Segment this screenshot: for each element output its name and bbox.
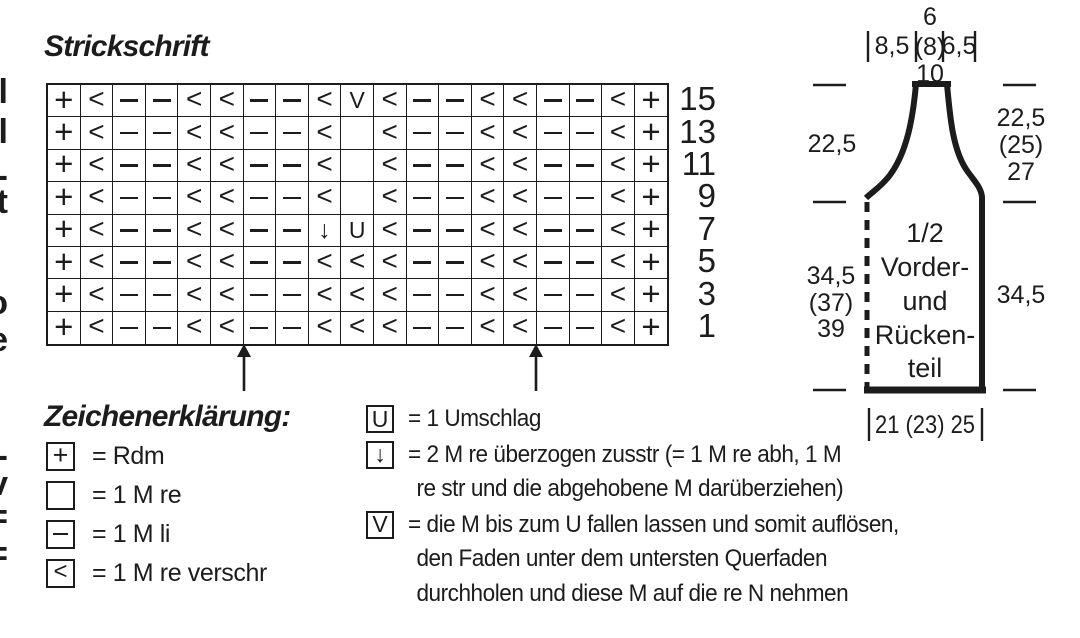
legend-item-text: = 1 M li <box>92 520 170 549</box>
chart-cell: < <box>178 117 211 149</box>
chart-cell <box>276 279 309 311</box>
chart-cell: < <box>602 312 635 344</box>
chart-cell: < <box>178 312 211 344</box>
chart-cell: < <box>211 279 244 311</box>
chart-cell: < <box>341 312 374 344</box>
chart-cell: U <box>341 215 374 247</box>
chart-cell <box>146 182 179 214</box>
chart-cell: < <box>211 150 244 182</box>
legend-symbol-box <box>46 520 75 549</box>
legend-item: V= die M bis zum U fallen lassen und som… <box>366 508 930 612</box>
purl-dash-icon <box>250 261 268 264</box>
legend-item-text: = 2 M re überzogen zusstr (= 1 M re abh,… <box>408 438 843 507</box>
chart-cell: < <box>472 117 505 149</box>
chart-cell: < <box>81 312 114 344</box>
clipped-margin-text-fragment: l <box>0 72 9 114</box>
purl-dash-icon <box>413 229 431 232</box>
legend-item-text: = 1 M re <box>92 481 181 510</box>
schematic-top-measures: 8,5 6 (8) 10 6,5 <box>868 3 976 88</box>
legend-symbol-box: < <box>46 559 75 588</box>
purl-dash-icon <box>544 229 562 232</box>
chart-cell: < <box>374 150 407 182</box>
chart-row-numbers: 15131197531 <box>672 83 716 342</box>
chart-cell <box>341 117 374 149</box>
scanned-knitting-pattern-page: { "chart": { "title": "Strickschrift", "… <box>0 0 1080 638</box>
purl-dash-icon <box>153 197 171 200</box>
chart-cell: + <box>48 279 81 311</box>
purl-dash-icon <box>413 261 431 264</box>
measure-right-lower: 34,5 <box>997 281 1046 309</box>
legend-item: = 1 M re <box>46 480 267 510</box>
legend-symbol-box: U <box>366 405 394 433</box>
clipped-glyph: o <box>0 283 8 323</box>
chart-cell: < <box>504 312 537 344</box>
piece-label-line: Vorder- <box>881 252 970 282</box>
purl-dash-icon <box>120 197 138 200</box>
legend-heading: Zeichenerklärung: <box>44 400 290 434</box>
chart-cell <box>407 247 440 279</box>
chart-cell: < <box>504 215 537 247</box>
clipped-margin-text-fragment: o <box>0 283 9 325</box>
purl-dash-icon <box>576 229 594 232</box>
chart-cell <box>570 117 603 149</box>
purl-dash-icon <box>250 327 268 330</box>
legend-item-text: = die M bis zum U fallen lassen und somi… <box>408 508 899 612</box>
chart-cell <box>113 215 146 247</box>
chart-cell: < <box>178 215 211 247</box>
chart-cell <box>276 150 309 182</box>
chart-cell: < <box>602 85 635 117</box>
chart-cell <box>439 279 472 311</box>
purl-dash-icon <box>153 294 171 297</box>
legend-text-line: durchholen und diese M auf die re N nehm… <box>408 577 899 612</box>
measure-right-upper: 27 <box>1007 158 1035 186</box>
purl-dash-icon <box>446 327 464 330</box>
chart-cell: < <box>341 247 374 279</box>
chart-cell: < <box>309 85 342 117</box>
chart-cell: ↓ <box>309 215 342 247</box>
clipped-glyph: t <box>0 182 8 222</box>
chart-cell <box>537 117 570 149</box>
purl-dash-icon <box>544 294 562 297</box>
chart-cell: < <box>374 279 407 311</box>
chart-row-number: 5 <box>672 245 716 277</box>
chart-cell: < <box>374 117 407 149</box>
chart-cell: < <box>504 247 537 279</box>
chart-cell <box>146 117 179 149</box>
chart-cell: < <box>374 312 407 344</box>
chart-cell <box>146 150 179 182</box>
legend-symbol-box: V <box>366 511 394 539</box>
chart-cell: < <box>504 279 537 311</box>
chart-cell: < <box>602 279 635 311</box>
chart-cell <box>244 182 277 214</box>
chart-cell: < <box>178 182 211 214</box>
chart-cell: < <box>81 182 114 214</box>
chart-cell <box>276 247 309 279</box>
legend-text-line: = die M bis zum U fallen lassen und somi… <box>408 508 899 543</box>
purl-dash-icon <box>283 197 301 200</box>
purl-dash-icon <box>283 327 301 330</box>
purl-dash-icon <box>153 132 171 135</box>
piece-label-line: teil <box>908 353 943 383</box>
chart-cell: < <box>178 279 211 311</box>
chart-cell <box>341 182 374 214</box>
legend-symbol-box: ↓ <box>366 441 394 469</box>
schematic-piece-label: 1/2 Vorder- und Rücken- teil <box>875 218 976 383</box>
repeat-marker-arrow-icon <box>527 344 545 391</box>
piece-label-line: Rücken- <box>875 320 976 350</box>
chart-row-number: 15 <box>672 83 716 115</box>
chart-cell <box>146 247 179 279</box>
measure-top-above: 6 <box>923 3 937 31</box>
chart-cell <box>570 247 603 279</box>
purl-dash-icon <box>120 261 138 264</box>
purl-dash-icon <box>446 99 464 102</box>
purl-dash-icon <box>413 164 431 167</box>
chart-cell <box>244 247 277 279</box>
legend-symbol-box <box>46 481 75 510</box>
purl-dash-icon <box>250 99 268 102</box>
chart-cell: < <box>472 279 505 311</box>
chart-cell: + <box>635 279 668 311</box>
chart-cell <box>244 117 277 149</box>
chart-cell <box>113 247 146 279</box>
chart-cell <box>146 312 179 344</box>
chart-cell: < <box>504 117 537 149</box>
purl-dash-icon <box>544 164 562 167</box>
chart-cell: V <box>341 85 374 117</box>
purl-dash-icon <box>250 229 268 232</box>
chart-cell: < <box>178 85 211 117</box>
purl-dash-icon <box>413 132 431 135</box>
chart-cell: < <box>341 279 374 311</box>
measure-top-right: 6,5 <box>942 32 977 60</box>
purl-dash-icon <box>446 261 464 264</box>
clipped-margin-text-fragment: e <box>0 320 9 362</box>
chart-cell: < <box>211 85 244 117</box>
purl-dash-icon <box>120 99 138 102</box>
chart-cell <box>276 85 309 117</box>
legend-item-text: = Rdm <box>92 442 164 471</box>
chart-cell <box>570 85 603 117</box>
chart-cell: < <box>504 150 537 182</box>
chart-cell <box>407 117 440 149</box>
chart-cell: < <box>472 182 505 214</box>
chart-cell: < <box>309 247 342 279</box>
repeat-marker-arrow-icon <box>235 344 253 391</box>
chart-cell <box>439 150 472 182</box>
purl-dash-icon <box>53 533 68 536</box>
chart-cell <box>570 312 603 344</box>
chart-cell: < <box>309 150 342 182</box>
legend-text-line: den Faden unter dem untersten Querfaden <box>408 542 899 577</box>
purl-dash-icon <box>120 164 138 167</box>
schematic-bottom-measure: 21 (23) 25 <box>869 408 982 441</box>
purl-dash-icon <box>413 327 431 330</box>
purl-dash-icon <box>446 164 464 167</box>
chart-cell <box>244 150 277 182</box>
purl-dash-icon <box>544 197 562 200</box>
chart-row-number: 13 <box>672 115 716 147</box>
purl-dash-icon <box>283 294 301 297</box>
chart-cell: < <box>309 182 342 214</box>
measure-left-lower: 34,5 <box>807 262 856 290</box>
chart-cell: < <box>309 312 342 344</box>
chart-cell <box>407 279 440 311</box>
legend-text-line: re str und die abgehobene M darüberziehe… <box>408 472 843 507</box>
clipped-margin-text-fragment: t <box>0 182 9 224</box>
chart-cell: < <box>472 247 505 279</box>
chart-cell: < <box>211 182 244 214</box>
purl-dash-icon <box>250 164 268 167</box>
measure-left-upper: 22,5 <box>808 130 857 158</box>
garment-schematic: 8,5 6 (8) 10 6,5 1/2 Vorder- und Rücken-… <box>800 0 1080 460</box>
purl-dash-icon <box>153 261 171 264</box>
purl-dash-icon <box>153 229 171 232</box>
chart-cell <box>407 312 440 344</box>
clipped-margin-text-fragment: l <box>0 112 9 154</box>
chart-cell <box>570 150 603 182</box>
clipped-glyph: e <box>0 320 8 360</box>
chart-cell <box>146 85 179 117</box>
chart-cell <box>113 85 146 117</box>
chart-cell <box>407 150 440 182</box>
chart-cell: < <box>309 279 342 311</box>
chart-cell: < <box>178 247 211 279</box>
purl-dash-icon <box>576 327 594 330</box>
chart-cell: < <box>211 215 244 247</box>
purl-dash-icon <box>413 294 431 297</box>
chart-cell: < <box>81 247 114 279</box>
chart-cell <box>439 312 472 344</box>
chart-cell: < <box>374 182 407 214</box>
purl-dash-icon <box>283 132 301 135</box>
chart-cell: < <box>81 85 114 117</box>
chart-cell: < <box>211 312 244 344</box>
chart-cell: < <box>472 150 505 182</box>
chart-cell <box>537 247 570 279</box>
measure-left-lower: (37) <box>809 289 853 317</box>
purl-dash-icon <box>283 164 301 167</box>
chart-row-number: 3 <box>672 277 716 309</box>
chart-cell: < <box>602 215 635 247</box>
chart-cell <box>570 215 603 247</box>
chart-cell: < <box>602 247 635 279</box>
chart-row-number: 1 <box>672 310 716 342</box>
chart-cell <box>244 85 277 117</box>
chart-cell: < <box>374 215 407 247</box>
purl-dash-icon <box>544 327 562 330</box>
legend-item-text: = 1 M re verschr <box>92 559 267 588</box>
chart-cell <box>407 85 440 117</box>
purl-dash-icon <box>576 132 594 135</box>
purl-dash-icon <box>576 294 594 297</box>
clipped-margin-text-fragment: = <box>0 534 9 576</box>
purl-dash-icon <box>120 132 138 135</box>
chart-cell: < <box>504 85 537 117</box>
chart-cell <box>146 279 179 311</box>
purl-dash-icon <box>446 132 464 135</box>
measure-right-upper: 22,5 <box>997 104 1046 132</box>
purl-dash-icon <box>153 327 171 330</box>
legend-text-line: = 1 Umschlag <box>408 402 541 437</box>
measure-right-upper: (25) <box>999 131 1043 159</box>
purl-dash-icon <box>283 261 301 264</box>
purl-dash-icon <box>413 197 431 200</box>
chart-cell <box>537 279 570 311</box>
chart-cell: < <box>81 215 114 247</box>
chart-cell: < <box>178 150 211 182</box>
chart-row-number: 7 <box>672 213 716 245</box>
chart-cell <box>439 215 472 247</box>
chart-cell <box>570 279 603 311</box>
clipped-glyph: l <box>0 112 8 152</box>
chart-cell <box>244 279 277 311</box>
chart-cell <box>113 279 146 311</box>
chart-cell <box>276 312 309 344</box>
purl-dash-icon <box>120 229 138 232</box>
legend-item: <= 1 M re verschr <box>46 558 267 588</box>
chart-cell <box>439 247 472 279</box>
clipped-glyph: = <box>0 497 8 537</box>
purl-dash-icon <box>153 99 171 102</box>
chart-cell <box>439 85 472 117</box>
chart-cell <box>407 215 440 247</box>
chart-cell <box>537 312 570 344</box>
chart-cell <box>439 182 472 214</box>
purl-dash-icon <box>544 99 562 102</box>
piece-label-line: und <box>902 286 947 316</box>
purl-dash-icon <box>283 99 301 102</box>
chart-cell: < <box>211 117 244 149</box>
chart-cell: < <box>472 85 505 117</box>
chart-cell <box>407 182 440 214</box>
chart-cell <box>537 150 570 182</box>
chart-cell: < <box>374 247 407 279</box>
legend-left-column: += Rdm= 1 M re= 1 M li<= 1 M re verschr <box>46 441 267 597</box>
piece-label-line: 1/2 <box>906 218 944 248</box>
clipped-glyph: = <box>0 534 8 574</box>
measure-left-lower: 39 <box>817 315 845 343</box>
chart-cell: < <box>472 215 505 247</box>
chart-cell <box>537 85 570 117</box>
chart-cell <box>276 182 309 214</box>
clipped-glyph: l <box>0 72 8 112</box>
chart-row-number: 11 <box>672 148 716 180</box>
chart-cell: < <box>81 150 114 182</box>
clipped-margin-text-fragment: = <box>0 497 9 539</box>
purl-dash-icon <box>250 197 268 200</box>
chart-cell <box>537 215 570 247</box>
chart-title: Strickschrift <box>44 30 209 64</box>
purl-dash-icon <box>413 99 431 102</box>
purl-dash-icon <box>120 294 138 297</box>
chart-cell: < <box>504 182 537 214</box>
purl-dash-icon <box>576 197 594 200</box>
chart-cell <box>113 150 146 182</box>
purl-dash-icon <box>250 294 268 297</box>
purl-dash-icon <box>446 229 464 232</box>
chart-cell: < <box>602 150 635 182</box>
chart-cell: + <box>635 312 668 344</box>
chart-cell <box>439 117 472 149</box>
purl-dash-icon <box>576 261 594 264</box>
chart-cell: < <box>211 247 244 279</box>
chart-cell <box>276 117 309 149</box>
chart-cell <box>570 182 603 214</box>
measure-bottom: 21 (23) 25 <box>875 411 975 439</box>
chart-cell: < <box>472 312 505 344</box>
purl-dash-icon <box>283 229 301 232</box>
purl-dash-icon <box>250 132 268 135</box>
purl-dash-icon <box>446 294 464 297</box>
chart-row-number: 9 <box>672 180 716 212</box>
chart-cell <box>244 215 277 247</box>
chart-cell <box>146 215 179 247</box>
chart-cell: + <box>48 312 81 344</box>
legend-symbol-box: + <box>46 442 75 471</box>
chart-cell: < <box>81 117 114 149</box>
chart-cell <box>113 312 146 344</box>
legend-text-line: = 2 M re überzogen zusstr (= 1 M re abh,… <box>408 438 843 473</box>
chart-cell <box>244 312 277 344</box>
chart-cell: < <box>602 117 635 149</box>
chart-cell: < <box>309 117 342 149</box>
chart-cell <box>113 117 146 149</box>
purl-dash-icon <box>153 164 171 167</box>
purl-dash-icon <box>120 327 138 330</box>
purl-dash-icon <box>544 132 562 135</box>
purl-dash-icon <box>576 164 594 167</box>
legend-item-text: = 1 Umschlag <box>408 402 541 437</box>
measure-top-left: 8,5 <box>875 32 910 60</box>
purl-dash-icon <box>544 261 562 264</box>
chart-cell: < <box>81 279 114 311</box>
chart-cell <box>113 182 146 214</box>
legend-item: = 1 M li <box>46 519 267 549</box>
purl-dash-icon <box>446 197 464 200</box>
chart-cell: < <box>602 182 635 214</box>
knitting-chart-grid: +<<<<V<<<<++<<<<<<<<++<<<<<<<<++<<<<<<<<… <box>46 83 669 346</box>
legend-item: += Rdm <box>46 441 267 471</box>
chart-cell <box>537 182 570 214</box>
purl-dash-icon <box>576 99 594 102</box>
chart-cell: < <box>374 85 407 117</box>
chart-cell <box>341 150 374 182</box>
chart-cell <box>276 215 309 247</box>
